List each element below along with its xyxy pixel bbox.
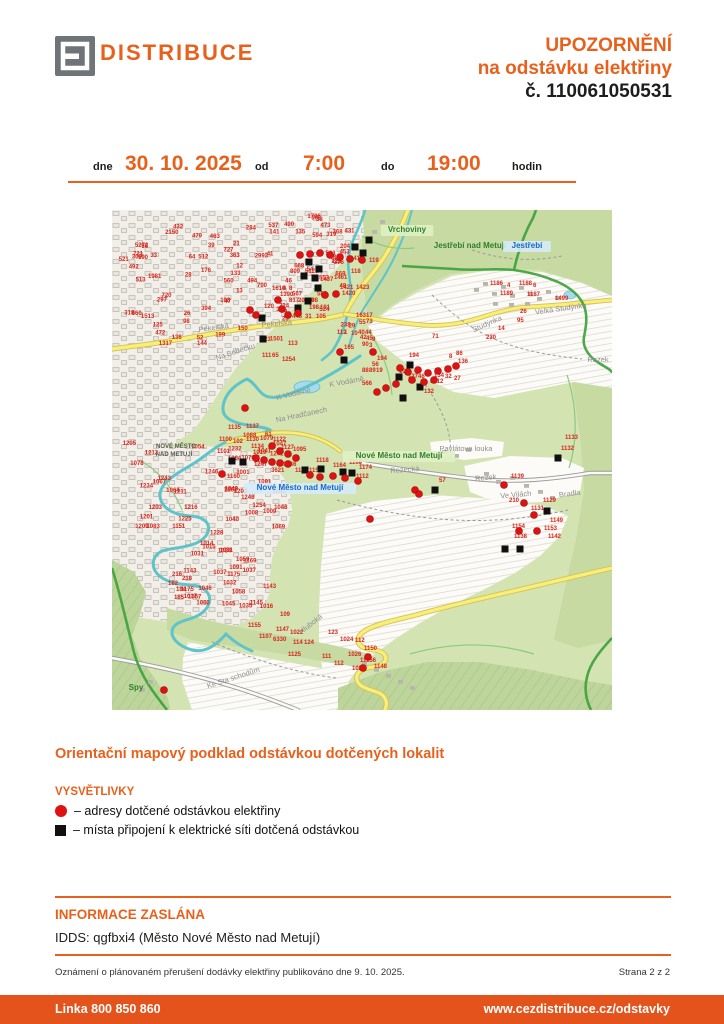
parcel-number: 26 [184, 311, 191, 317]
parcel-number: 1100 [219, 437, 233, 443]
parcel-number: 176 [201, 268, 212, 274]
outage-address-dot [445, 366, 452, 373]
parcel-number: 1101 [217, 449, 231, 455]
legend-item-text: – místa připojení k elektrické síti dotč… [73, 823, 359, 837]
parcel-number: 1169 [243, 558, 257, 564]
outage-address-dot [501, 482, 508, 489]
place-label-text: Jestřebí nad Metují [434, 241, 507, 250]
building [509, 303, 514, 307]
parcel-number: 71 [432, 334, 439, 340]
notice-title-line1: UPOZORNĚNÍ [478, 34, 672, 57]
parcel-number: 1501 [270, 337, 284, 343]
parcel-number: 1016 [260, 604, 274, 610]
parcel-number: 1513 [141, 314, 155, 320]
parcel-number: 61 [265, 432, 272, 438]
parcel-number: 1091 [229, 565, 243, 571]
parcel-number: 125 [153, 322, 164, 328]
outage-address-dot [425, 370, 432, 377]
parcel-number: 1060 [196, 600, 210, 606]
red-circle-icon [55, 805, 67, 817]
parcel-number: 1008 [245, 511, 259, 517]
outage-address-dot [453, 363, 460, 370]
place-label-text: Jestřebí [512, 241, 543, 250]
outage-address-dot [327, 252, 334, 259]
parcel-number: 13 [236, 288, 243, 294]
outage-address-dot [277, 448, 284, 455]
outage-address-dot [285, 312, 292, 319]
parcel-number: 132 [424, 389, 435, 395]
connection-point-square [517, 546, 524, 553]
parcel-number: 1037 [243, 568, 257, 574]
phone-line: Linka 800 850 860 [55, 995, 161, 1024]
outage-address-dot [531, 512, 538, 519]
outage-address-dot [435, 368, 442, 375]
place-label: Řezek [587, 355, 609, 364]
parcel-number: 368 [333, 230, 344, 236]
parcel-number: 194 [377, 356, 388, 362]
outage-address-dot [317, 250, 324, 257]
place-label: Nové Město nad Metují [244, 483, 356, 494]
place-label-text: NAD METUJÍ [156, 450, 193, 458]
outage-address-dot [285, 451, 292, 458]
connection-point-square [396, 374, 403, 381]
connection-point-square [305, 298, 312, 305]
parcel-number: 1437 [320, 277, 334, 283]
outage-address-dot [383, 385, 390, 392]
parcel-number: 64 [189, 254, 196, 260]
legend-item-connections: – místa připojení k elektrické síti dotč… [55, 823, 359, 837]
parcel-number: 1234 [140, 484, 154, 490]
parcel-number: 1139 [511, 474, 525, 480]
parcel-number: 1151 [172, 524, 186, 530]
parcel-number: 191 [320, 305, 331, 311]
parcel-number: 560 [224, 279, 235, 285]
parcel-number: 1186 [490, 281, 504, 287]
parcel-number: 1143 [183, 569, 197, 575]
parcel-number: 32 [445, 374, 452, 380]
parcel-number: 1138 [514, 534, 528, 540]
outage-address-dot [342, 475, 349, 482]
parcel-number: 194 [409, 353, 420, 359]
parcel-number: 119 [369, 258, 379, 264]
building [493, 302, 498, 306]
parcel-number: 1420 [342, 291, 356, 297]
outage-address-dot [516, 528, 523, 535]
parcel-number: 28 [185, 273, 192, 279]
black-square-icon [55, 825, 66, 836]
outage-address-dot [393, 381, 400, 388]
parcel-number: 136 [172, 335, 183, 341]
parcel-number: 144 [197, 341, 208, 347]
building [386, 674, 391, 678]
parcel-number: 118 [351, 269, 361, 275]
parcel-number: 1175 [227, 572, 241, 578]
building [474, 288, 479, 292]
outage-address-dot [293, 455, 300, 462]
parcel-number: 185 [174, 595, 185, 601]
outage-address-dot [295, 310, 302, 317]
connection-point-square [312, 275, 319, 282]
parcel-number: 46 [285, 278, 292, 284]
parcel-number: 57 [439, 478, 446, 484]
page-number: Strana 2 z 2 [619, 967, 670, 978]
parcel-number: 1499 [555, 296, 569, 302]
outage-address-dot [330, 473, 337, 480]
parcel-number: 141 [269, 229, 280, 235]
parcel-number: 594 [312, 233, 323, 239]
outage-address-dot [253, 455, 260, 462]
parcel-number: 98 [183, 319, 190, 325]
parcel-number: 1133 [565, 435, 579, 441]
parcel-number: 19 [376, 368, 383, 374]
parcel-number: 111 [322, 654, 332, 660]
outage-address-dot [317, 474, 324, 481]
parcel-number: 1088 [243, 433, 257, 439]
publication-note: Oznámení o plánovaném přerušení dodávky … [55, 967, 405, 978]
parcel-number: 1189 [500, 291, 514, 297]
idds-line: IDDS: qgfbxi4 (Město Nové Město nad Metu… [55, 930, 320, 945]
outage-address-dot [297, 252, 304, 259]
building [372, 230, 377, 234]
place-label-text: NOVÉ MĚSTO [156, 442, 196, 450]
from-label: od [255, 161, 268, 173]
parcel-number: 537 [268, 223, 279, 229]
parcel-number: 109 [280, 612, 291, 618]
place-label: Pavlátova louka [440, 444, 494, 453]
parcel-number: 21 [233, 242, 240, 248]
connection-point-square [315, 285, 322, 292]
parcel-number: 65 [272, 353, 279, 359]
parcel-number: 492 [129, 265, 140, 271]
parcel-number: 204 [340, 244, 351, 250]
parcel-number: 1150 [364, 646, 378, 652]
parcel-number: 400 [284, 222, 295, 228]
parcel-number: 1131 [531, 506, 545, 512]
connection-point-square [318, 466, 325, 473]
place-label-text: Spy [129, 683, 144, 692]
parcel-number: 1149 [550, 518, 564, 524]
parcel-number: 1142 [548, 534, 562, 540]
parcel-number: 1122 [273, 437, 287, 443]
parcel-number: 472 [155, 331, 166, 337]
outage-date: 30. 10. 2025 [125, 152, 242, 176]
parcel-number: 1188 [519, 281, 533, 287]
parcel-number: 165 [344, 345, 355, 351]
place-label: Vrchoviny [381, 225, 434, 236]
outage-address-dot [415, 367, 422, 374]
outage-address-dot [534, 528, 541, 535]
parcel-number: 1017 [184, 594, 198, 600]
parcel-number: 1187 [527, 292, 541, 298]
outage-address-dot [431, 377, 438, 384]
parcel-number: 521 [119, 257, 130, 263]
divider-top [55, 896, 671, 898]
outage-address-dot [269, 443, 276, 450]
connection-point-square [240, 459, 247, 466]
parcel-number: 660 [132, 311, 143, 317]
parcel-number: 1143 [263, 584, 277, 590]
parcel-number: 112 [334, 661, 344, 667]
parcel-number: 1034 [218, 549, 232, 555]
connection-point-square [352, 244, 359, 251]
parcel-number: 12 [236, 263, 243, 269]
parcel-number: 1317 [159, 341, 173, 347]
parcel-number: 1129 [543, 498, 557, 504]
parcel-number: 1148 [374, 664, 388, 670]
parcel-number: 1225 [178, 517, 192, 523]
outage-address-dot [359, 257, 366, 264]
outage-address-dot [521, 500, 528, 507]
parcel-number: 512 [198, 254, 209, 260]
connection-point-square [555, 455, 562, 462]
parcel-number: 124 [304, 640, 315, 646]
parcel-number: 26 [520, 309, 527, 315]
footer-link[interactable]: www.cezdistribuce.cz/odstavky [484, 995, 670, 1024]
notice-number: č. 110061050531 [478, 80, 672, 103]
connection-point-square [544, 508, 551, 515]
parcel-number: 114 [293, 640, 303, 646]
parcel-number: 1205 [123, 441, 137, 447]
parcel-number: 1035 [239, 603, 253, 609]
parcel-number: 1147 [276, 627, 290, 633]
parcel-number: 108 [220, 298, 231, 304]
parcel-number: 33 [150, 253, 157, 259]
place-label-text: Řezek [587, 355, 609, 364]
time-to: 19:00 [427, 152, 481, 176]
parcel-number: 1174 [359, 465, 373, 471]
parcel-number: 561 [311, 215, 322, 221]
legend-item-addresses: – adresy dotčené odstávkou elektřiny [55, 804, 280, 818]
outage-address-dot [261, 457, 268, 464]
building [410, 686, 415, 690]
parcel-number: 1132 [561, 446, 575, 452]
parcel-number: 284 [246, 226, 257, 232]
parcel-number: 199 [215, 333, 226, 339]
parcel-number: 27 [454, 376, 461, 382]
outage-address-dot [307, 472, 314, 479]
place-label: NOVÉ MĚSTO [156, 442, 196, 450]
building [380, 220, 385, 224]
legend-item-text: – adresy dotčené odstávkou elektřiny [74, 804, 280, 818]
parcel-number: 720 [162, 293, 173, 299]
info-sent-title: INFORMACE ZASLÁNA [55, 907, 205, 922]
parcel-number: 1046 [274, 505, 288, 511]
outage-address-dot [242, 405, 249, 412]
outage-address-dot [307, 251, 314, 258]
connection-point-square [502, 546, 509, 553]
brand-name: DISTRIBUCE [100, 40, 254, 66]
parcel-number: 590 [138, 255, 149, 261]
building [546, 290, 551, 294]
notice-title: UPOZORNĚNÍ na odstávku elektřiny č. 1100… [478, 34, 672, 103]
parcel-number: 123 [328, 630, 339, 636]
parcel-number: 1160 [227, 474, 241, 480]
parcel-number: 95 [517, 318, 524, 324]
parcel-number: 1064 [166, 488, 180, 494]
outage-map: 6676686691317284300473537198115011706199… [112, 210, 612, 710]
parcel-number: 1981 [148, 274, 162, 280]
parcel-number: 14 [498, 326, 505, 332]
outage-address-dot [374, 389, 381, 396]
connection-point-square [229, 458, 236, 465]
place-label-text: Pavlátova louka [440, 444, 494, 453]
place-label-text: Nové Město nad Metují [356, 451, 443, 460]
parcel-number: 2993 [255, 254, 269, 260]
parcel-number: 1045 [222, 602, 236, 608]
place-label: Nové Město nad Metují [343, 451, 455, 462]
header: DISTRIBUCE UPOZORNĚNÍ na odstávku elektř… [0, 0, 724, 130]
outage-address-dot [269, 459, 276, 466]
parcel-number: 1095 [293, 447, 307, 453]
parcel-number: 136 [458, 359, 469, 365]
parcel-number: 112 [355, 638, 365, 644]
parcel-number: 1164 [333, 463, 347, 469]
outage-address-dot [337, 254, 344, 261]
outage-address-dot [347, 256, 354, 263]
parcel-number: 1125 [288, 652, 302, 658]
parcel-number: 700 [257, 283, 268, 289]
parcel-number: 1015 [202, 545, 216, 551]
connection-point-square [407, 362, 414, 369]
parcel-number: 2150 [165, 230, 179, 236]
parcel-number: 133 [231, 271, 242, 277]
outage-address-dot [397, 365, 404, 372]
parcel-number: 73 [366, 319, 373, 325]
connection-point-square [316, 266, 323, 273]
outage-address-dot [416, 491, 423, 498]
parcel-number: 6330 [273, 637, 287, 643]
building [525, 302, 530, 306]
outage-address-dot [253, 312, 260, 319]
place-label-text: Vrchoviny [388, 225, 427, 234]
connection-point-square [306, 259, 313, 266]
map-svg: 6676686691317284300473537198115011706199… [112, 210, 612, 710]
outage-address-dot [370, 349, 377, 356]
outage-address-dot [219, 471, 226, 478]
parcel-number: 1155 [248, 623, 262, 629]
place-label: Spy [129, 683, 144, 692]
parcel-number: 1153 [544, 526, 558, 532]
parcel-number: 1228 [210, 530, 224, 536]
parcel-number: 102 [233, 439, 244, 445]
divider-bottom [55, 954, 671, 956]
footer-bar: Linka 800 850 860 www.cezdistribuce.cz/o… [0, 995, 724, 1024]
time-from: 7:00 [303, 152, 345, 176]
connection-point-square [341, 357, 348, 364]
parcel-number: 1246 [205, 469, 219, 475]
parcel-number: 1201 [140, 515, 154, 521]
parcel-number: 3621 [271, 468, 285, 474]
parcel-number: 52 [197, 336, 204, 342]
parcel-number: 20 [298, 298, 305, 304]
parcel-number: 1032 [223, 581, 237, 587]
parcel-number: 230 [486, 335, 497, 341]
parcel-number: 1046 [198, 586, 212, 592]
parcel-number: 1118 [316, 458, 329, 464]
parcel-number: 1040 [226, 517, 240, 523]
connection-point-square [366, 237, 373, 244]
parcel-number: 463 [210, 234, 221, 240]
parcel-number: 1137 [246, 424, 260, 430]
map-caption: Orientační mapový podklad odstávkou dotč… [55, 746, 444, 762]
parcel-number: 809 [290, 269, 301, 275]
outage-address-dot [333, 291, 340, 298]
parcel-number: 1024 [340, 637, 354, 643]
parcel-number: 1135 [228, 425, 242, 431]
building [148, 680, 153, 684]
outage-address-dot [275, 297, 282, 304]
parcel-number: 1083 [147, 524, 161, 530]
building [398, 680, 403, 684]
parcel-number: 184 [176, 587, 187, 593]
connection-point-square [301, 273, 308, 280]
outage-address-dot [421, 379, 428, 386]
to-label: do [381, 161, 394, 173]
parcel-number: 1037 [213, 570, 227, 576]
parcel-number: 31 [305, 314, 312, 320]
parcel-number: 1216 [184, 505, 198, 511]
hours-label: hodin [512, 161, 542, 173]
outage-address-dot [247, 307, 254, 314]
parcel-number: 1203 [149, 505, 163, 511]
parcel-number: 1248 [241, 495, 255, 501]
legend-title: VYSVĚTLIVKY [55, 786, 134, 798]
parcel-number: 105 [316, 314, 327, 320]
parcel-number: 39 [208, 243, 215, 249]
parcel-number: 111 [262, 353, 272, 359]
parcel-number: 1031 [191, 552, 205, 558]
parcel-number: 1069 [272, 524, 286, 530]
parcel-number: 120 [264, 304, 275, 310]
connection-point-square [360, 250, 367, 257]
parcel-number: 150 [238, 326, 249, 332]
parcel-number: 473 [321, 223, 332, 229]
outage-address-dot [367, 516, 374, 523]
schedule-underline [68, 181, 576, 183]
outage-address-dot [277, 460, 284, 467]
parcel-number: 513 [136, 278, 147, 284]
parcel-number: 394 [201, 306, 212, 312]
place-label-text: Nové Město nad Metují [257, 483, 344, 492]
parcel-number: 431 [345, 229, 356, 235]
parcel-number: 29 [349, 324, 356, 330]
outage-address-dot [322, 292, 329, 299]
outage-address-dot [279, 306, 286, 313]
parcel-number: 432 [173, 224, 184, 230]
outage-address-dot [285, 461, 292, 468]
outage-address-dot [365, 654, 372, 661]
building [483, 282, 488, 286]
parcel-number: 1049 [225, 486, 239, 492]
parcel-number: 113 [288, 341, 298, 347]
parcel-number: 479 [192, 233, 203, 239]
connection-point-square [432, 487, 439, 494]
place-label: Jestřebí [503, 241, 551, 252]
place-label: Jestřebí nad Metují [434, 241, 507, 250]
outage-address-dot [409, 377, 416, 384]
parcel-number: 1107 [259, 634, 273, 640]
outage-address-dot [161, 687, 168, 694]
building [538, 490, 543, 494]
date-label: dne [93, 161, 113, 173]
cez-logo-icon [55, 36, 95, 76]
parcel-number: 1058 [232, 589, 246, 595]
parcel-number: 363 [230, 253, 241, 259]
parcel-number: 1078 [130, 461, 144, 467]
parcel-number: 1243 [158, 476, 172, 482]
connection-point-square [400, 395, 407, 402]
place-label: NAD METUJÍ [156, 450, 193, 458]
